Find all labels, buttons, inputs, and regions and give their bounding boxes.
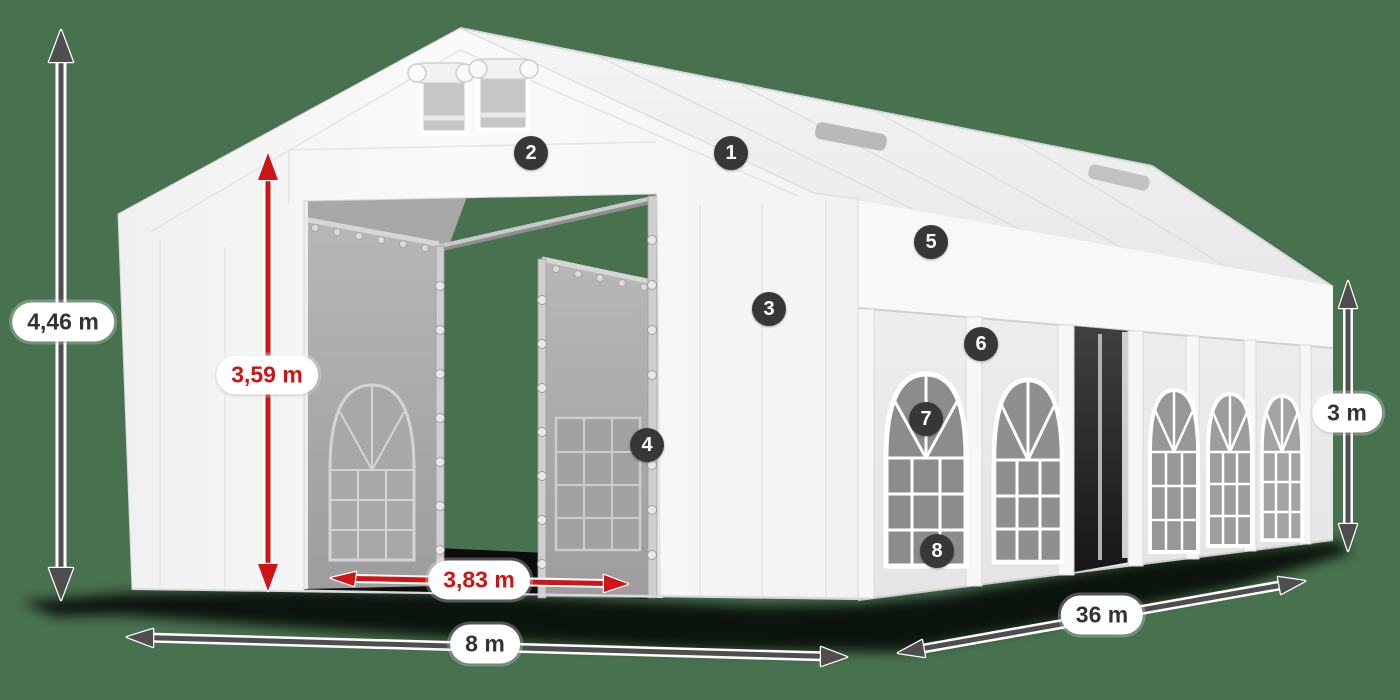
dimension-side-length-label: 36 m [1061,596,1143,635]
part-marker-7: 7 [909,402,943,436]
dimension-front-width-label: 8 m [450,625,520,664]
part-marker-1: 1 [714,136,748,170]
dimension-total-height-label: 4,46 m [12,303,114,342]
part-marker-8: 8 [920,534,954,568]
part-marker-2: 2 [514,136,548,170]
part-marker-6: 6 [964,327,998,361]
part-marker-5: 5 [914,225,948,259]
dimension-side-height-label: 3 m [1312,394,1382,433]
part-marker-4: 4 [630,428,664,462]
tent-illustration [0,0,1400,700]
left-panel-arch-window [330,385,414,560]
front-opening-interior [300,194,663,599]
part-marker-3: 3 [752,292,786,326]
gable-vent-right [469,59,538,130]
side-entrance-opening [1074,326,1130,572]
tent-dimensions-diagram: 4,46 m 3,59 m 3,83 m 8 m 36 m 3 m 1 2 3 … [0,0,1400,700]
right-panel-grid-window [556,418,640,550]
dimension-door-width-label: 3,83 m [428,561,530,600]
dimension-door-height-label: 3,59 m [216,356,318,395]
